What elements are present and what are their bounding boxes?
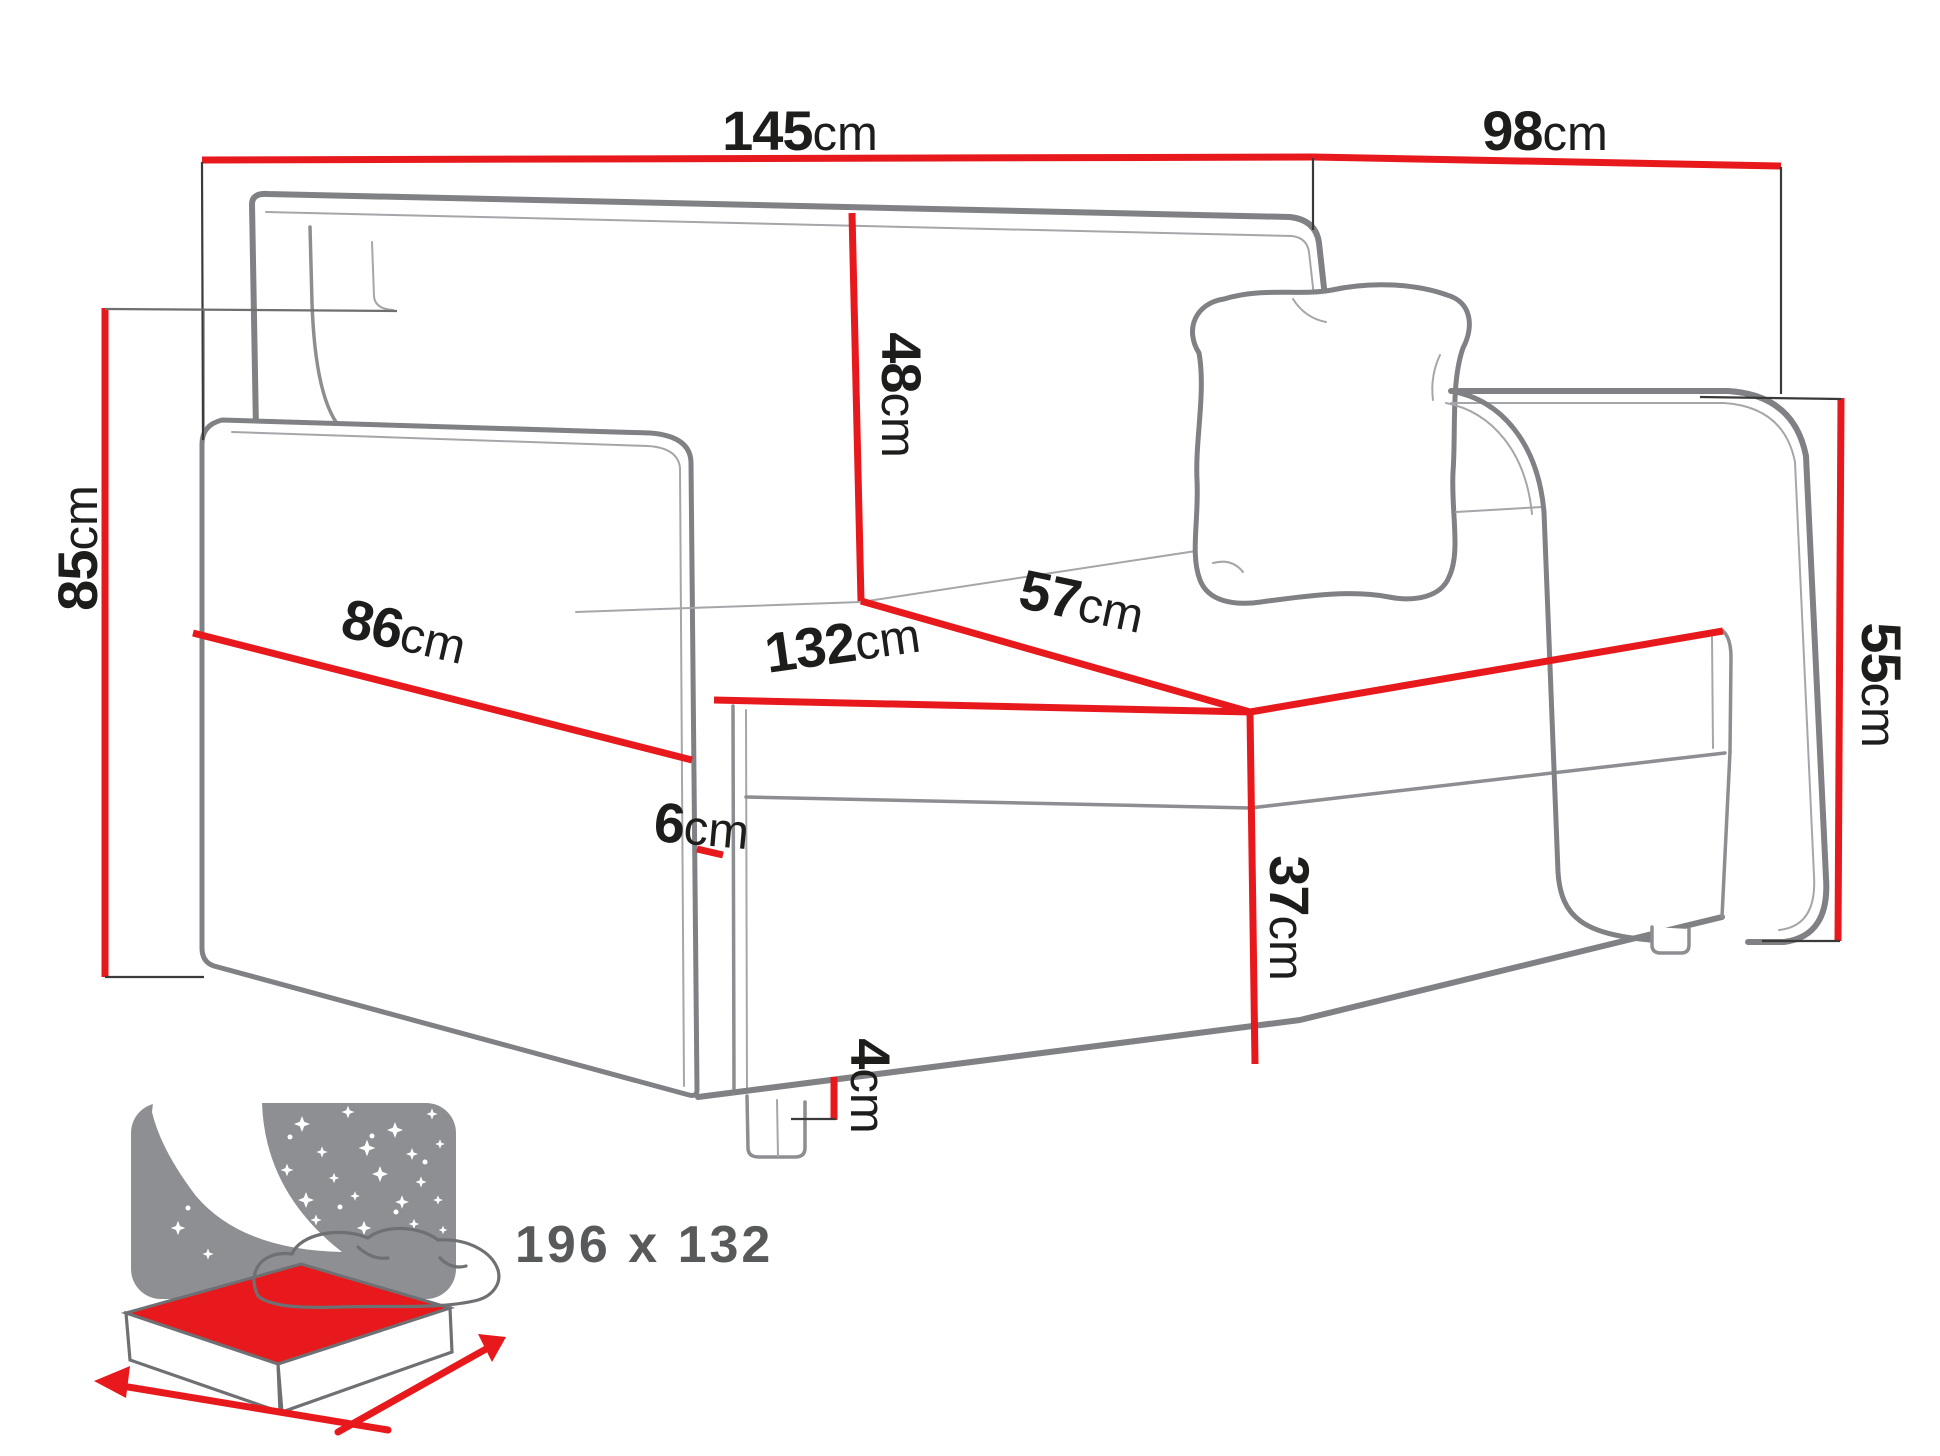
sofa-backrest [204,194,1336,438]
sofa-left-armrest [202,420,697,1095]
seat-back-edge [1456,507,1542,512]
dimension-label-overall-height: 85cm [46,485,109,611]
backrest-fold-line [310,227,336,422]
dimension-label-overall-depth: 98cm [1482,99,1608,162]
dimension-line [852,213,861,601]
sofa-drawing [202,194,1826,1157]
dimension-seat-width: 132cm [714,601,1723,712]
sofa-pillow [1192,285,1469,604]
dimension-label-seat-width: 132cm [761,601,924,685]
dimension-backrest-height: 48cm [852,213,933,601]
dimension-label-seat-height: 37cm [1258,855,1321,981]
sleeping-function-icon: 196 x 132 [94,1103,773,1432]
dimension-label-armrest-thickness: 6cm [651,790,752,861]
sofa-leg-right [1652,927,1689,953]
extension-line [105,309,397,311]
dimension-overall-width: 145cm [202,99,1313,440]
dimension-label-backrest-height: 48cm [870,332,933,458]
dimension-line [1250,712,1255,1064]
extension-line [202,162,203,440]
dimension-line [1838,398,1841,941]
sleeping-area-label: 196 x 132 [515,1216,773,1274]
dimension-label-leg-height: 4cm [839,1038,902,1133]
dimension-leg-height: 4cm [791,1038,902,1133]
sofa-dimension-diagram: 145cm 98cm 85cm 48cm 57cm 132cm 86cm 6cm [0,0,1940,1456]
dimension-label-seat-depth: 57cm [1014,557,1150,645]
extension-line [1700,397,1841,399]
back-cushion-corner-line [372,242,393,310]
dimension-label-overall-width: 145cm [722,99,878,162]
sofa-leg-front [747,1096,805,1157]
dimension-armrest-thickness: 6cm [651,790,752,861]
dimension-label-armrest-height: 55cm [1850,622,1913,748]
dimension-seat-height: 37cm [1250,712,1321,1064]
